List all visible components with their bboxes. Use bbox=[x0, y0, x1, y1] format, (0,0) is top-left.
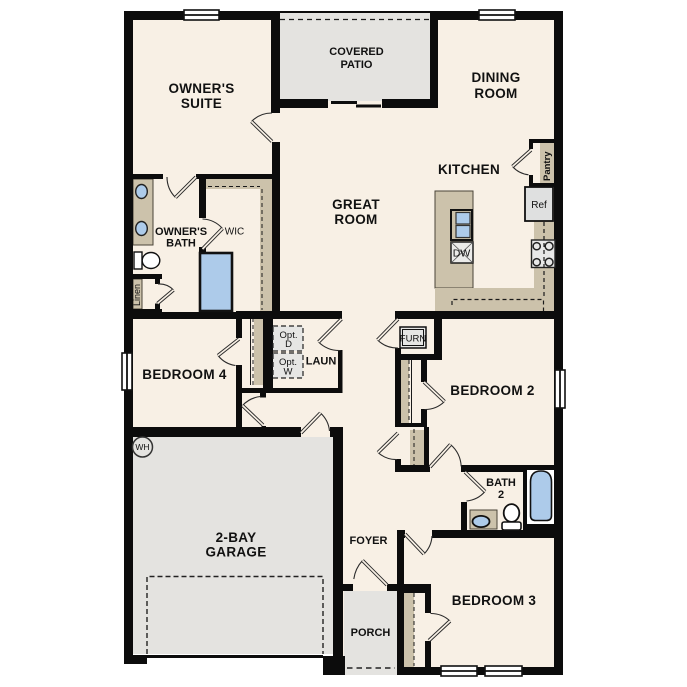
svg-text:BATH: BATH bbox=[166, 238, 196, 250]
svg-text:WIC: WIC bbox=[225, 227, 244, 238]
svg-text:LAUN: LAUN bbox=[306, 356, 337, 368]
svg-text:Ref: Ref bbox=[531, 200, 547, 211]
svg-text:D: D bbox=[285, 339, 292, 350]
svg-text:BEDROOM 2: BEDROOM 2 bbox=[450, 383, 534, 398]
svg-text:BEDROOM 3: BEDROOM 3 bbox=[452, 593, 537, 608]
svg-text:OWNER'S: OWNER'S bbox=[155, 226, 207, 238]
svg-text:FOYER: FOYER bbox=[350, 535, 388, 547]
svg-text:WH: WH bbox=[135, 442, 149, 452]
svg-text:2: 2 bbox=[498, 489, 504, 501]
svg-text:PORCH: PORCH bbox=[351, 627, 391, 639]
svg-text:DW: DW bbox=[453, 248, 471, 260]
svg-text:BATH: BATH bbox=[486, 477, 516, 489]
svg-text:FURN: FURN bbox=[400, 334, 427, 345]
svg-text:BEDROOM 4: BEDROOM 4 bbox=[142, 367, 227, 382]
svg-text:COVERED: COVERED bbox=[329, 46, 383, 58]
svg-text:PATIO: PATIO bbox=[341, 59, 373, 71]
svg-text:2-BAY: 2-BAY bbox=[216, 530, 257, 545]
svg-text:Pantry: Pantry bbox=[542, 151, 553, 181]
svg-text:GREAT: GREAT bbox=[332, 197, 380, 212]
svg-text:SUITE: SUITE bbox=[181, 96, 222, 111]
svg-text:ROOM: ROOM bbox=[474, 86, 517, 101]
svg-text:OWNER'S: OWNER'S bbox=[168, 81, 234, 96]
svg-text:W: W bbox=[284, 367, 293, 378]
svg-text:GARAGE: GARAGE bbox=[205, 545, 266, 560]
svg-text:ROOM: ROOM bbox=[334, 212, 377, 227]
svg-text:DINING: DINING bbox=[471, 70, 520, 85]
svg-text:Linen: Linen bbox=[132, 284, 142, 306]
svg-text:KITCHEN: KITCHEN bbox=[438, 162, 500, 177]
